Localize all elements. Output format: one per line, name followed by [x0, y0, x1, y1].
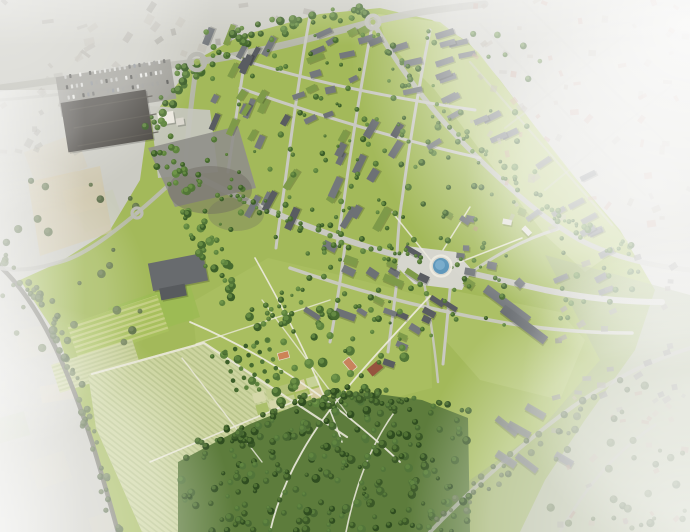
- aerial-masterplan-rendering: [0, 0, 690, 532]
- haze-top-edge: [0, 0, 690, 46]
- aerial-view-canvas: [0, 0, 690, 532]
